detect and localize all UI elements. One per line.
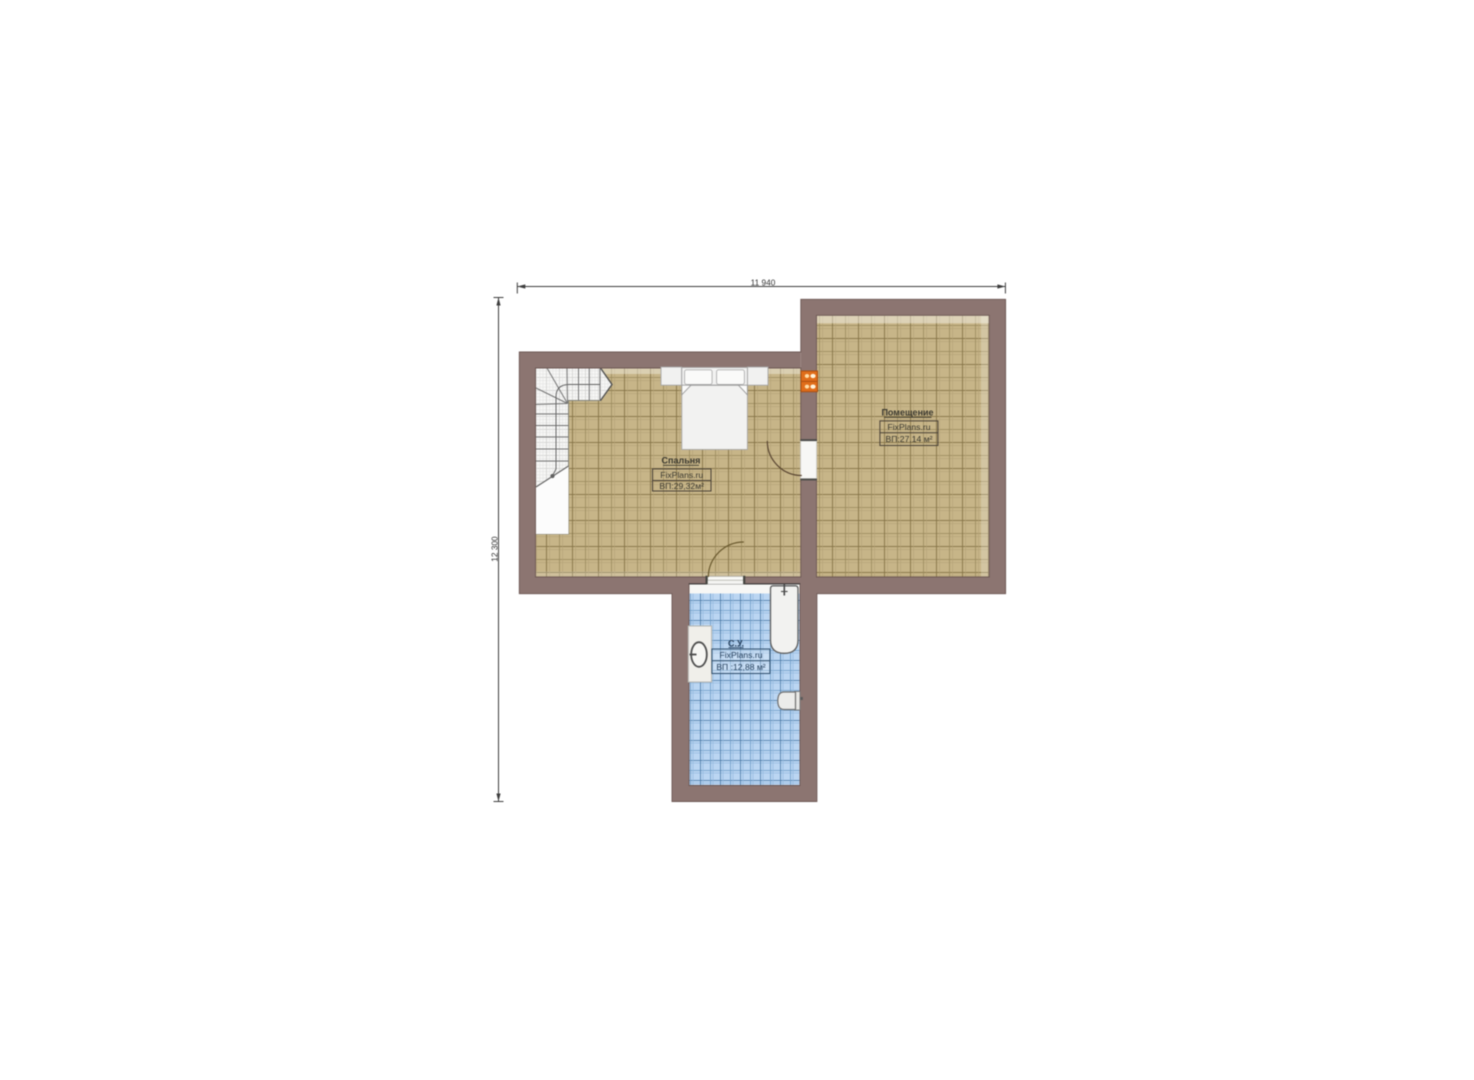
svg-text:FixPlans.ru: FixPlans.ru <box>888 422 931 432</box>
svg-text:С.У.: С.У. <box>728 638 744 648</box>
svg-text:ВП:27,14 м²: ВП:27,14 м² <box>886 434 933 444</box>
svg-text:ВП :12,88 м²: ВП :12,88 м² <box>716 662 765 672</box>
svg-text:12 300: 12 300 <box>490 536 500 562</box>
svg-text:FixPlans.ru: FixPlans.ru <box>720 650 763 660</box>
svg-text:Помещение: Помещение <box>881 408 933 418</box>
svg-text:Спальня: Спальня <box>662 456 701 466</box>
svg-text:ВП:29,32м²: ВП:29,32м² <box>659 481 704 491</box>
svg-text:FixPlans.ru: FixPlans.ru <box>660 470 703 480</box>
svg-text:11 940: 11 940 <box>751 277 776 287</box>
